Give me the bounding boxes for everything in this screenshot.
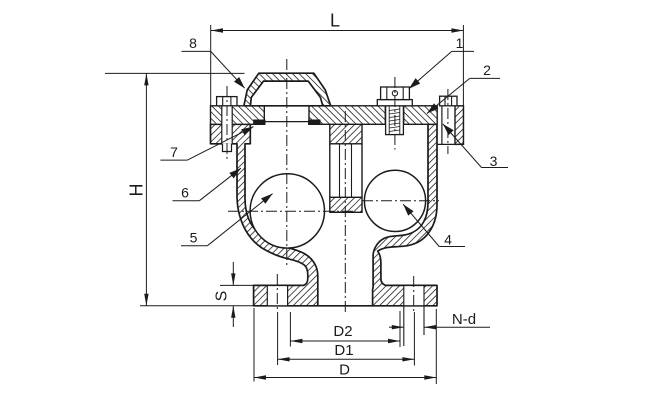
svg-text:7: 7	[170, 144, 178, 160]
svg-text:3: 3	[490, 153, 498, 169]
svg-text:N-d: N-d	[452, 311, 476, 328]
svg-text:H: H	[127, 184, 147, 197]
svg-text:L: L	[330, 11, 340, 31]
svg-text:S: S	[214, 291, 231, 302]
svg-text:6: 6	[181, 185, 189, 201]
svg-text:2: 2	[483, 62, 491, 78]
svg-text:8: 8	[189, 35, 197, 51]
svg-text:D1: D1	[334, 342, 353, 359]
svg-text:5: 5	[190, 230, 198, 246]
svg-text:D: D	[339, 362, 350, 379]
svg-text:4: 4	[444, 232, 452, 248]
svg-text:1: 1	[456, 35, 464, 51]
svg-text:D2: D2	[333, 323, 352, 340]
